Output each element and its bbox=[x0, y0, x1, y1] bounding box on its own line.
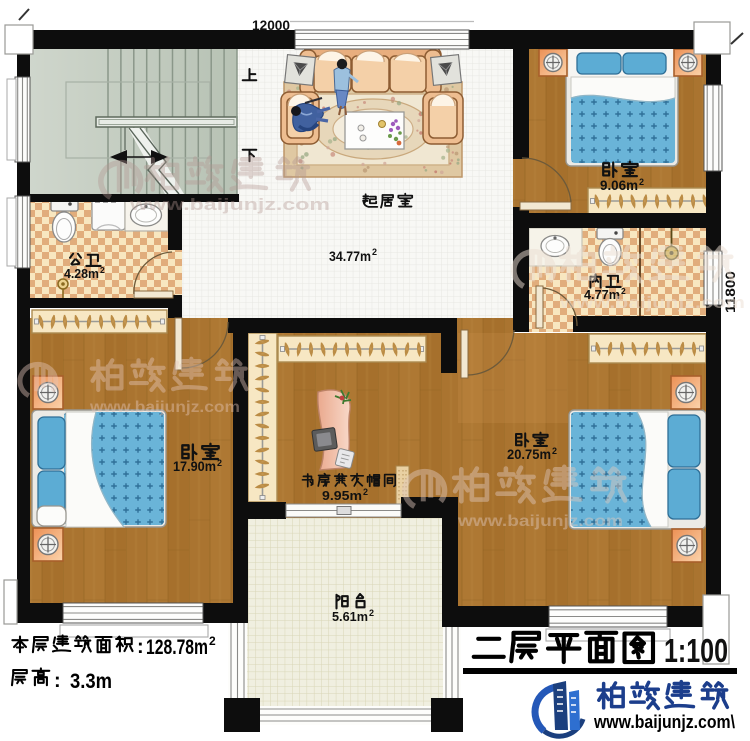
svg-text:9.95m: 9.95m bbox=[322, 488, 362, 503]
svg-text:12000: 12000 bbox=[252, 17, 290, 33]
svg-text:2: 2 bbox=[100, 265, 105, 275]
svg-text:128.78m: 128.78m bbox=[146, 636, 208, 659]
svg-text::: : bbox=[137, 636, 144, 658]
svg-text:5.61m: 5.61m bbox=[332, 609, 368, 624]
svg-text:4.28m: 4.28m bbox=[64, 267, 99, 281]
svg-text:1:100: 1:100 bbox=[664, 632, 728, 669]
svg-text:20.75m: 20.75m bbox=[507, 447, 551, 462]
svg-text:2: 2 bbox=[363, 487, 368, 497]
svg-text:34.77m: 34.77m bbox=[329, 249, 371, 264]
svg-text:2: 2 bbox=[552, 446, 557, 456]
svg-text:2: 2 bbox=[372, 247, 377, 257]
svg-text:www.baijunjz.com: www.baijunjz.com bbox=[457, 513, 623, 530]
svg-text:2: 2 bbox=[209, 634, 216, 648]
svg-text:3.3m: 3.3m bbox=[70, 670, 112, 693]
svg-text:www.baijunjz.com: www.baijunjz.com bbox=[129, 196, 330, 214]
svg-text::: : bbox=[54, 670, 61, 692]
svg-text:17.90m: 17.90m bbox=[173, 459, 216, 474]
svg-text:www.baijunjz.com: www.baijunjz.com bbox=[89, 399, 240, 416]
svg-text:9.06m: 9.06m bbox=[600, 178, 638, 193]
svg-text:2: 2 bbox=[217, 458, 222, 468]
svg-text:www.baijunjz.com: www.baijunjz.com bbox=[559, 293, 745, 312]
svg-text:2: 2 bbox=[639, 177, 644, 187]
svg-text:www.baijunjz.com\: www.baijunjz.com\ bbox=[593, 712, 735, 732]
svg-text:2: 2 bbox=[369, 608, 374, 618]
